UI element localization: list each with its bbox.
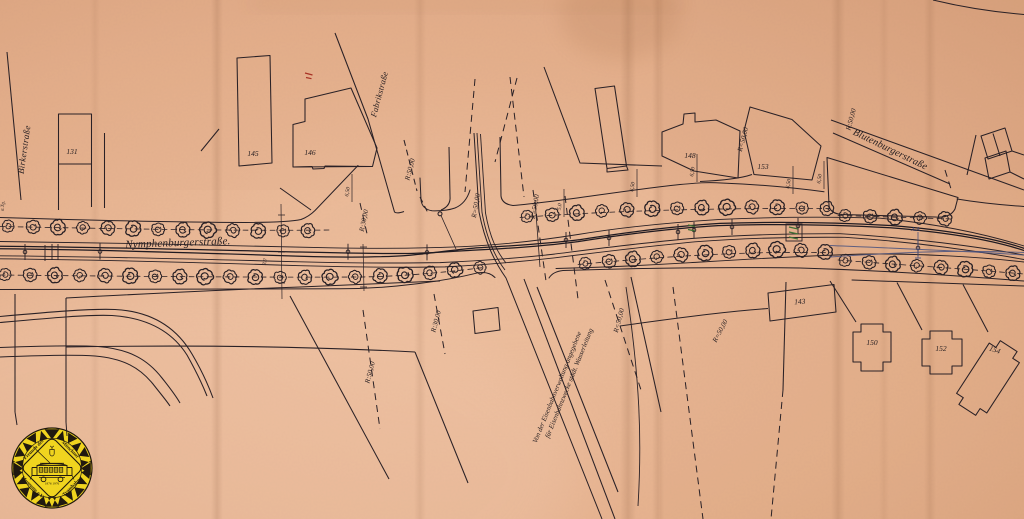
svg-text:a.Tg.: a.Tg. xyxy=(1,201,7,212)
svg-text:153: 153 xyxy=(757,162,769,171)
svg-text:A.A: A.A xyxy=(910,227,920,233)
svg-text:150: 150 xyxy=(866,338,878,347)
svg-text:5,0: 5,0 xyxy=(556,203,563,211)
svg-text:143: 143 xyxy=(794,297,806,307)
svg-text:145: 145 xyxy=(247,149,259,158)
svg-text:131: 131 xyxy=(66,147,77,156)
svg-text:1876 1976: 1876 1976 xyxy=(45,482,60,486)
svg-text:148: 148 xyxy=(684,151,696,160)
svg-text:146: 146 xyxy=(304,148,316,157)
svg-text:152: 152 xyxy=(935,344,947,353)
